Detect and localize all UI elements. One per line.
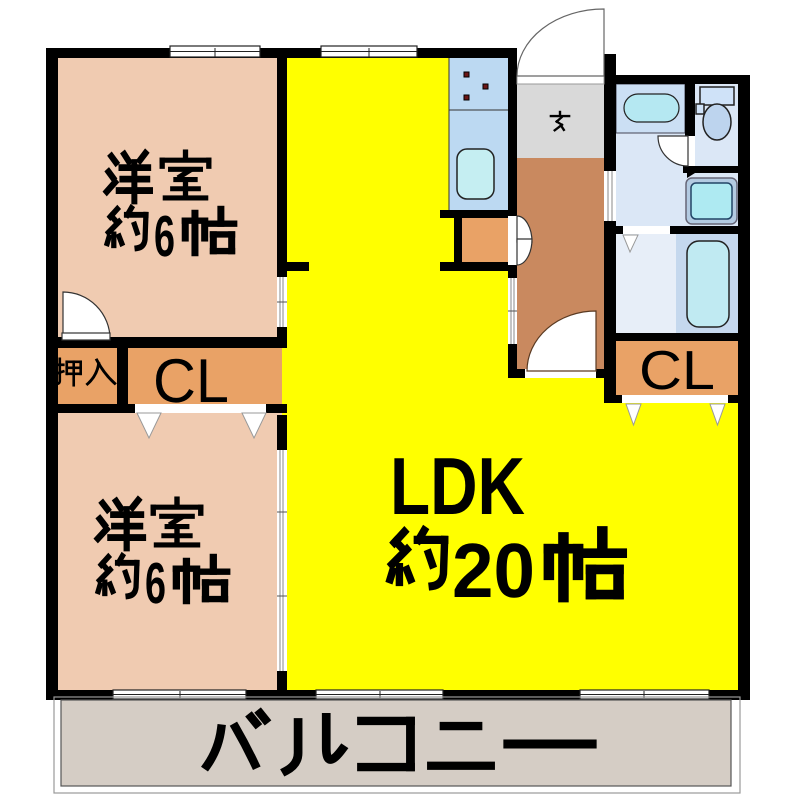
svg-text:6: 6	[145, 551, 166, 616]
svg-text:CL: CL	[153, 347, 229, 416]
svg-text:20: 20	[452, 528, 535, 614]
svg-text:CL: CL	[639, 339, 715, 401]
svg-text:6: 6	[154, 204, 175, 269]
svg-text:LDK: LDK	[390, 442, 525, 532]
